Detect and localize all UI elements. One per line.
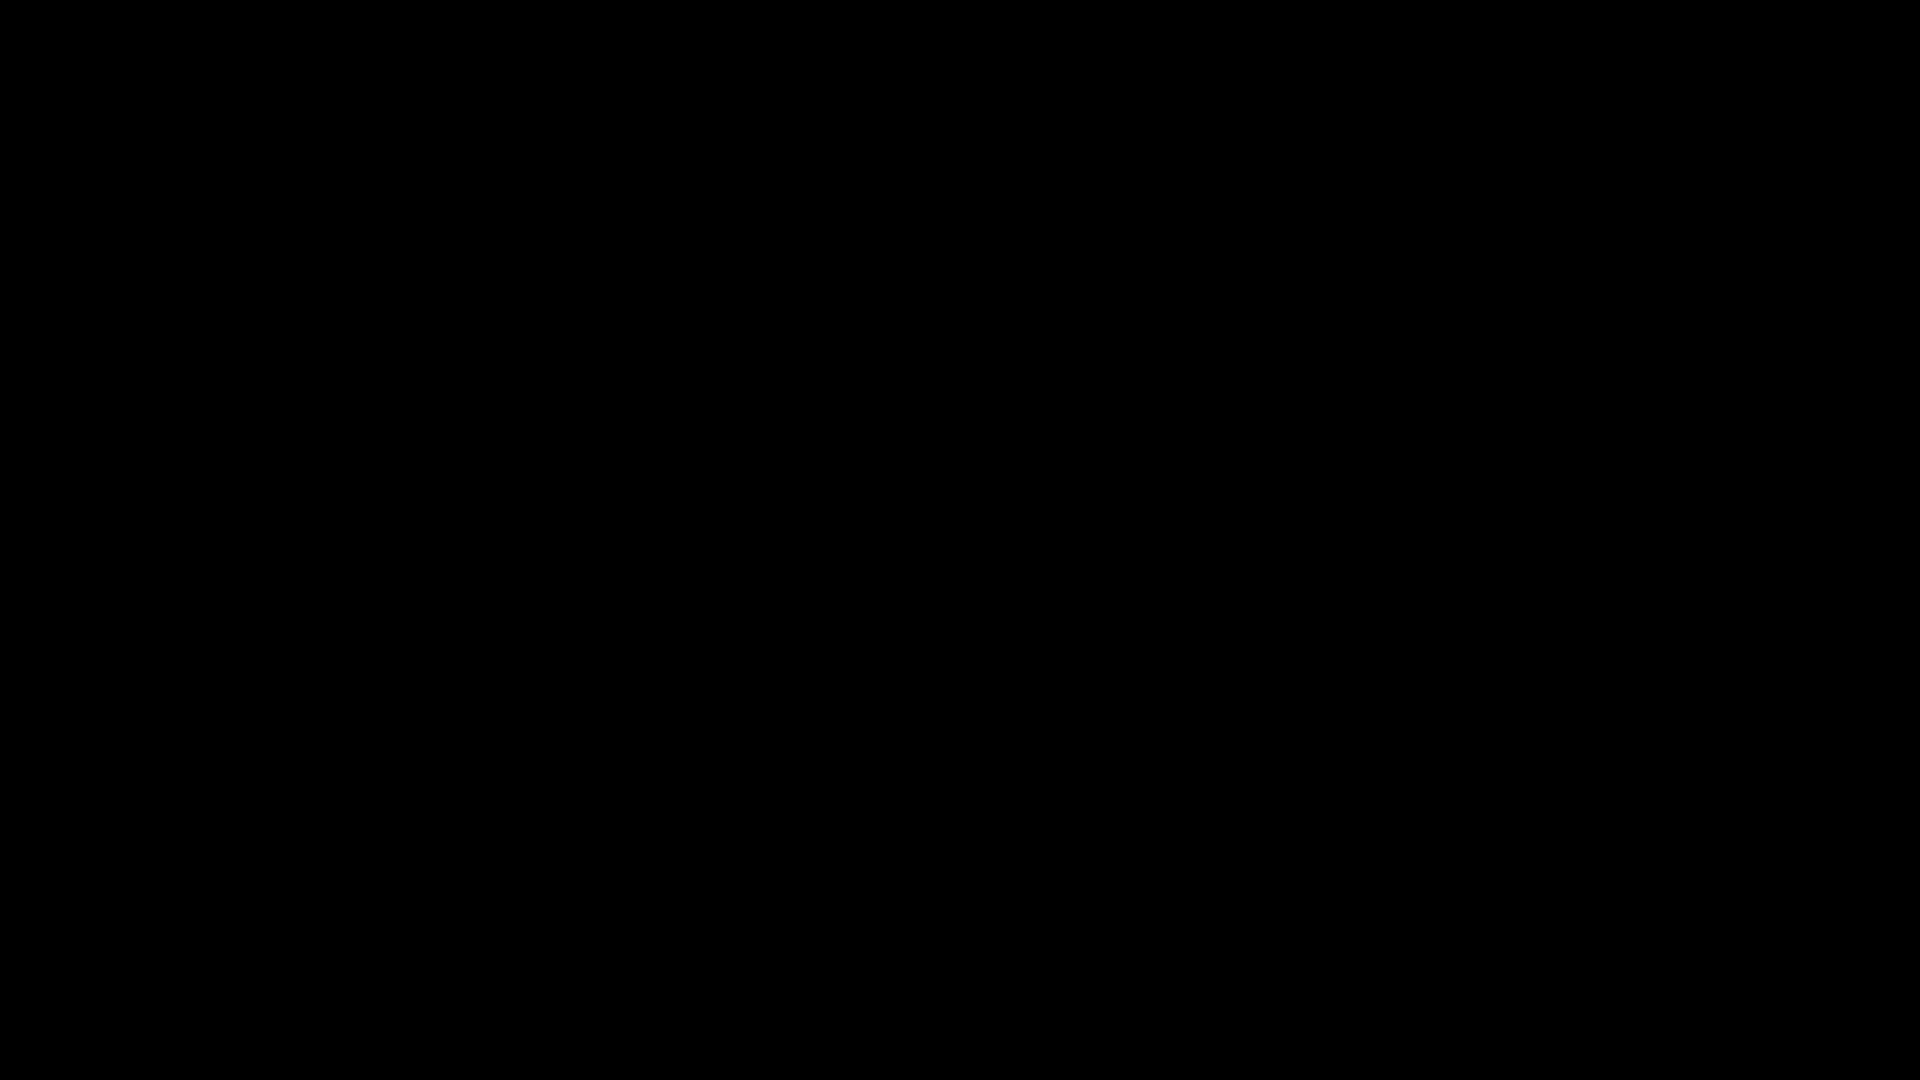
apartment-isometric-render <box>0 0 1920 1080</box>
floorplan-stage <box>0 0 1920 1080</box>
black-background <box>0 0 1920 1080</box>
